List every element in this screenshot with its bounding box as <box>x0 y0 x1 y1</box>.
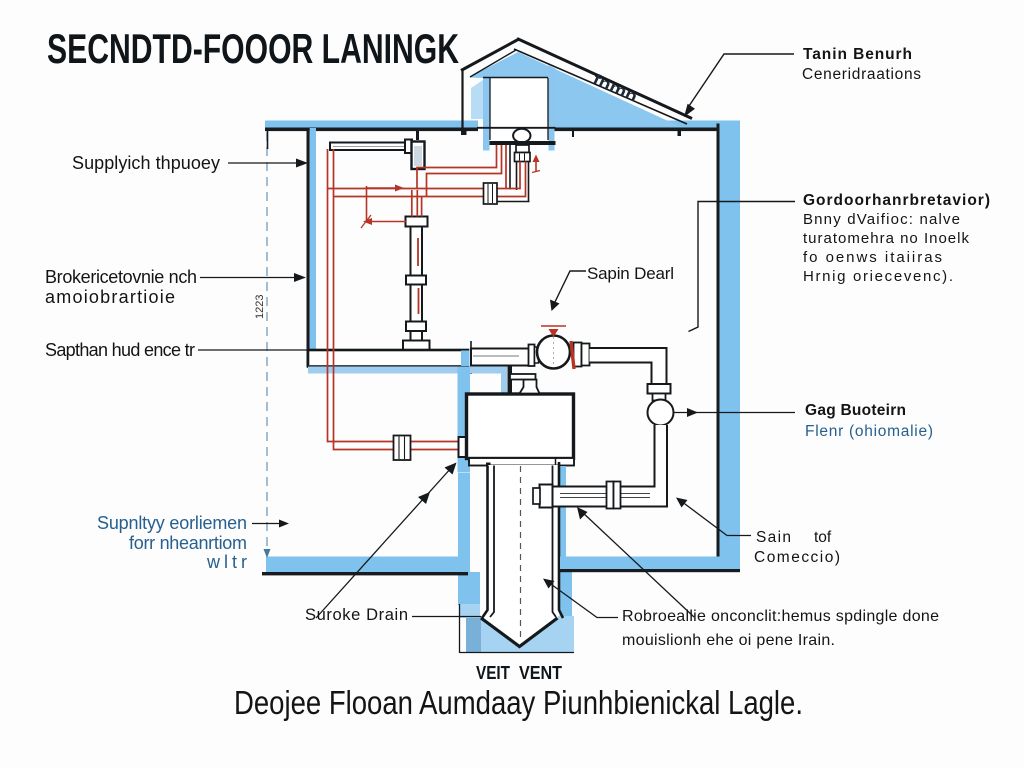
svg-text:Bnny dVaifioc: nalve: Bnny dVaifioc: nalve <box>803 211 960 228</box>
svg-text:Sapthan hud ence tr: Sapthan hud ence tr <box>45 340 195 360</box>
svg-text:Deojee Flooan Aumdaay Piunhbie: Deojee Flooan Aumdaay Piunhbienickal Lag… <box>234 684 803 721</box>
svg-text:Brokericetovnie nch: Brokericetovnie nch <box>45 267 197 287</box>
svg-text:forr nheanrtiom: forr nheanrtiom <box>129 533 247 553</box>
svg-text:tof: tof <box>814 529 832 546</box>
svg-text:Ceneridraations: Ceneridraations <box>802 66 921 83</box>
svg-text:VEIT: VEIT <box>476 662 511 683</box>
svg-text:Supnltyy eorliemen: Supnltyy eorliemen <box>97 513 247 533</box>
svg-text:turatomehra no Inoelk: turatomehra no Inoelk <box>803 230 970 247</box>
svg-text:Flenr (ohiomalie): Flenr (ohiomalie) <box>805 423 933 440</box>
svg-text:Comeccio): Comeccio) <box>754 549 840 566</box>
svg-text:wltr: wltr <box>206 552 247 572</box>
svg-text:amoiobrartioie: amoiobrartioie <box>45 287 175 307</box>
svg-text:Robroeallie onconclit:hemus sp: Robroeallie onconclit:hemus spdingle don… <box>622 608 939 625</box>
svg-text:Sain: Sain <box>756 529 791 546</box>
svg-text:Supplyich thpuoey: Supplyich thpuoey <box>72 153 220 173</box>
svg-text:VENT: VENT <box>519 662 563 683</box>
svg-text:Hrnig oriecevenc).: Hrnig oriecevenc). <box>803 268 953 285</box>
svg-text:Tanin Benurh: Tanin Benurh <box>803 46 912 63</box>
svg-text:SECNDTD-FOOOR LANINGK: SECNDTD-FOOOR LANINGK <box>47 25 459 72</box>
svg-text:1223: 1223 <box>254 295 266 319</box>
svg-text:Gordoorhanrbretavior): Gordoorhanrbretavior) <box>803 192 990 209</box>
svg-text:Gag Buoteirn: Gag Buoteirn <box>805 402 906 419</box>
svg-text:Sapin Dearl: Sapin Dearl <box>587 264 674 283</box>
svg-text:mouislionh ehe oi pene Irain.: mouislionh ehe oi pene Irain. <box>622 632 835 649</box>
svg-text:Suroke Drain: Suroke Drain <box>305 606 408 624</box>
